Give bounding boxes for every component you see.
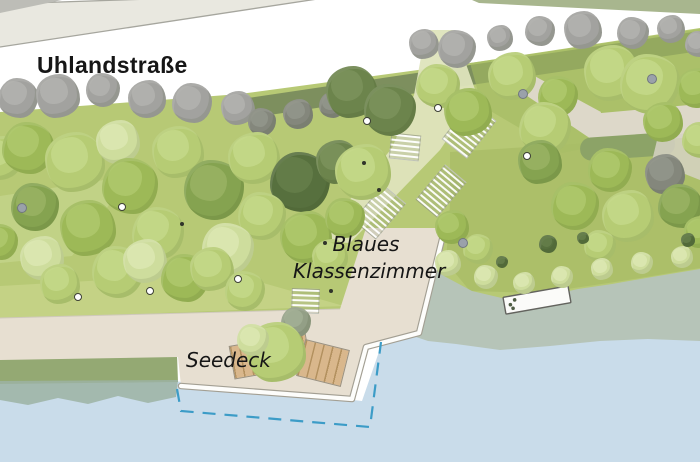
blaues-klassenzimmer-line1: Blaues: [293, 231, 439, 258]
blaues-klassenzimmer-label: Blaues Klassenzimmer: [293, 231, 439, 285]
street-label: Uhlandstraße: [37, 52, 188, 79]
seedeck-label: Seedeck: [186, 348, 271, 372]
site-plan: Uhlandstraße Blaues Klassenzimmer Seedec…: [0, 0, 700, 462]
shore-wave-strip: [0, 380, 178, 405]
top-green-band: [472, 0, 700, 14]
blaues-klassenzimmer-line2: Klassenzimmer: [293, 258, 439, 285]
